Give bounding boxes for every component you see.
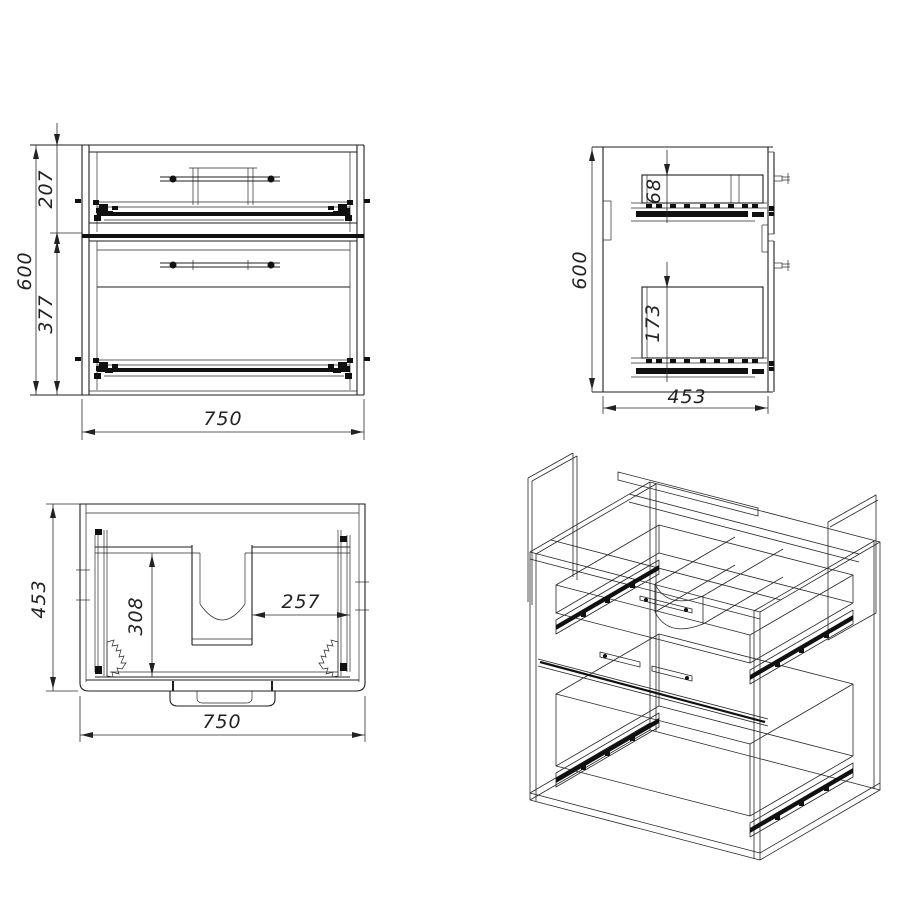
top-left-slide-lever — [107, 640, 126, 677]
side-top-slide — [631, 203, 774, 221]
top-cabinet-outline — [76, 504, 369, 691]
technical-drawing-page: 600 207 377 750 — [0, 0, 900, 900]
top-view: 453 308 257 750 — [28, 504, 369, 742]
front-drawer-gap-band — [82, 234, 364, 238]
iso-mid-rail — [538, 659, 768, 726]
iso-top-handle — [640, 596, 692, 613]
side-bottom-slide — [631, 358, 774, 377]
side-dim-bottom-box: 173 — [642, 303, 664, 342]
top-dim-cutout-offset: 257 — [281, 591, 320, 613]
top-dim-width: 750 — [202, 711, 241, 733]
front-view: 600 207 377 750 — [14, 123, 370, 440]
side-dim-top-box: 68 — [643, 178, 665, 204]
front-dim-width: 750 — [203, 408, 242, 430]
front-top-slide-rails — [75, 199, 370, 221]
side-top-handle — [774, 173, 790, 184]
top-handle-profile — [170, 681, 275, 706]
side-view: 600 68 173 453 — [569, 147, 790, 414]
front-top-slide-hardware-right — [328, 200, 353, 221]
top-left-slide — [95, 529, 126, 677]
front-dim-total-height: 600 — [14, 251, 36, 290]
side-dim-depth: 453 — [667, 386, 706, 408]
iso-slide-upper-right — [750, 610, 853, 684]
front-top-drawer — [75, 152, 370, 238]
top-right-slide — [319, 530, 350, 677]
side-dim-height: 600 — [569, 250, 591, 289]
front-dim-bottom-section: 377 — [35, 294, 57, 333]
iso-bottom-handle — [600, 652, 692, 681]
sink-cutout — [192, 545, 252, 645]
iso-drawer-slides — [556, 560, 853, 837]
front-dimensions: 600 207 377 750 — [14, 123, 364, 440]
front-bottom-drawer — [75, 241, 370, 390]
side-bottom-handle — [774, 260, 790, 271]
front-bottom-slide-rails — [75, 357, 370, 379]
side-back-notch — [603, 201, 611, 240]
front-top-handle — [160, 168, 280, 205]
top-dim-inner-depth: 308 — [125, 596, 147, 635]
iso-slide-lower-right — [750, 763, 853, 837]
side-drawer-fronts — [768, 152, 790, 392]
front-bottom-handle — [160, 260, 280, 270]
isometric-view — [528, 453, 880, 860]
top-dim-depth: 453 — [28, 579, 50, 618]
side-cabinet-outline — [592, 147, 773, 392]
top-right-slide-lever — [319, 640, 338, 677]
front-top-slide-hardware-left — [93, 200, 118, 221]
cabinet-technical-drawing: 600 207 377 750 — [0, 0, 900, 900]
front-dim-top-section: 207 — [35, 169, 57, 208]
